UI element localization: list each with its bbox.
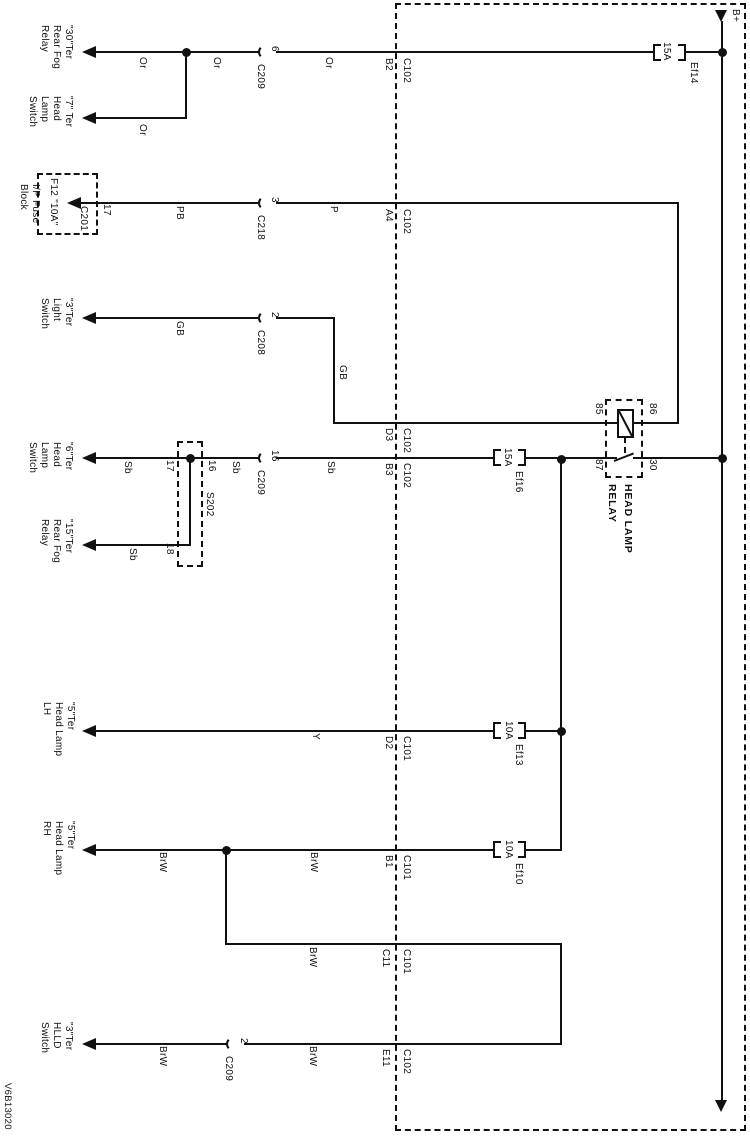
wire-color-label: BrW: [156, 1046, 168, 1066]
target-rear-fog-relay-15: "15"Ter Rear Fog Relay: [38, 519, 74, 563]
connector-name: C102: [400, 463, 412, 488]
wire-gb-1: [95, 317, 258, 319]
relay-pin: 30: [646, 459, 658, 471]
wire-feed-drop: [560, 459, 562, 851]
relay-86-stub: [633, 422, 679, 424]
wire-brw-loop: [560, 944, 562, 1045]
fuse-rating: 10A: [502, 840, 514, 859]
connector-pin: 16: [268, 450, 280, 462]
wire-color-label: BrW: [307, 852, 319, 872]
target-head-lamp-switch-7: "7" Ter Head Lamp Switch: [26, 96, 74, 127]
wire-color-label: BrW: [306, 947, 318, 967]
connector-pin: C11: [379, 949, 391, 968]
fuse-rating: 15A: [660, 42, 672, 61]
relay-name: HEAD LAMP RELAY: [604, 484, 636, 554]
target-hlld-switch-3: "3"Ter HLLD Switch: [38, 1022, 74, 1053]
relay-pin: 87: [592, 459, 604, 471]
wiring-diagram-page: B+ "30"Ter Rear Fog Relay Or Or 6 C209 O…: [0, 0, 750, 1136]
wire-p: [276, 202, 679, 204]
junction-dot: [557, 727, 566, 736]
bplus-exit-arrow-icon: [715, 1100, 727, 1112]
wire-sb-drop: [189, 459, 191, 545]
connector-name: C101: [400, 736, 412, 761]
connector-pin: 17: [100, 204, 112, 216]
relay-actuator-dash: [624, 437, 626, 453]
wire-brw-3: [225, 943, 562, 945]
wire-arrow-icon: [82, 46, 96, 58]
wire-or-3: [685, 51, 722, 53]
target-light-switch-3: "3"Ter Light Switch: [38, 298, 74, 329]
target-head-lamp-lh-5: "5"Ter Head Lamp LH: [40, 702, 76, 756]
wire-color-label: Sb: [126, 548, 138, 561]
splice-pin: 17: [163, 460, 175, 472]
wire-brw-4: [95, 1043, 228, 1045]
wire-y-1: [95, 730, 493, 732]
relay-pin: 85: [592, 403, 604, 415]
fuse-rating: 10A: [502, 721, 514, 740]
target-head-lamp-rh-5: "5"Ter Head Lamp RH: [40, 821, 76, 875]
connector-name: C101: [400, 855, 412, 880]
relay-coil-icon: [617, 409, 635, 439]
splice-pin: 16: [205, 460, 217, 472]
wire-gb-drop: [333, 317, 335, 424]
wire-color-label: Or: [136, 124, 148, 136]
wire-sb-2: [276, 457, 493, 459]
connector-name: C208: [254, 330, 266, 355]
harness-boundary-box: [395, 3, 746, 1131]
connector-pin: A4: [382, 209, 394, 222]
fuse-f12-label: F12 "10A": [47, 178, 59, 226]
fuse-name: Ef14: [687, 62, 699, 84]
wire-color-label: P: [327, 206, 339, 213]
wire-color-label: Y: [309, 733, 321, 740]
wire-arrow-icon: [82, 539, 96, 551]
wire-or-2: [276, 51, 653, 53]
target-head-lamp-switch-6: "6"Ter Head Lamp Switch: [26, 442, 74, 473]
wire-color-label: Sb: [121, 461, 133, 474]
connector-name: C209: [222, 1056, 234, 1081]
connector-pin: E11: [379, 1049, 391, 1067]
wire-sb-4: [95, 544, 191, 546]
splice-pin: 18: [163, 543, 175, 555]
wire-arrow-icon: [82, 844, 96, 856]
wire-color-label: Or: [136, 57, 148, 69]
wire-arrow-icon: [82, 112, 96, 124]
wire-color-label: BrW: [156, 852, 168, 872]
connector-name: C102: [400, 58, 412, 83]
fuse-bracket-icon: [493, 449, 501, 466]
connector-name: C102: [400, 1049, 412, 1074]
wire-color-label: GB: [336, 365, 348, 380]
fuse-bracket-icon: [493, 722, 501, 739]
wire-color-label: Sb: [324, 461, 336, 474]
relay-pin: 86: [646, 403, 658, 415]
wire-arrow-icon: [82, 312, 96, 324]
connector-name: C209: [254, 470, 266, 495]
wire-or-1: [95, 51, 260, 53]
connector-pin: D2: [382, 736, 394, 749]
connector-name: C201: [77, 206, 89, 231]
wire-p-drop: [677, 202, 679, 424]
bplus-label: B+: [729, 9, 741, 22]
wire-color-label: Sb: [229, 461, 241, 474]
wire-gb-2: [276, 317, 335, 319]
connector-pin: D3: [382, 428, 394, 441]
wire-color-label: BrW: [306, 1046, 318, 1066]
wire-brw-5: [244, 1043, 562, 1045]
connector-name: C101: [400, 949, 412, 974]
connector-name: C218: [254, 215, 266, 240]
connector-name: C209: [254, 64, 266, 89]
fuse-name: Ef16: [512, 471, 524, 493]
wire-brw-2: [525, 849, 562, 851]
wire-brw-1: [95, 849, 493, 851]
connector-pin: B1: [382, 855, 394, 868]
connector-name: C102: [400, 209, 412, 234]
diagram-id: V6B13020: [1, 1083, 13, 1130]
fuse-bracket-icon: [493, 841, 501, 858]
connector-pin: B2: [382, 58, 394, 71]
wire-color-label: PB: [173, 206, 185, 220]
fuse-name: Ef10: [512, 863, 524, 885]
wire-arrow-icon: [82, 452, 96, 464]
wire-arrow-icon: [82, 1038, 96, 1050]
wire-or-drop: [185, 52, 187, 118]
wire-gb-3: [333, 422, 605, 424]
wire-color-label: GB: [173, 321, 185, 336]
wire-arrow-icon: [82, 725, 96, 737]
splice-name: S202: [203, 492, 215, 517]
connector-pin: B3: [382, 463, 394, 476]
wire-or-4: [95, 117, 187, 119]
wire-color-label: Or: [322, 57, 334, 69]
ip-fuse-block-label: I/P Fuse Block: [17, 184, 41, 223]
wire-brw-drop: [225, 850, 227, 945]
wire-color-label: Or: [210, 57, 222, 69]
fuse-name: Ef13: [512, 744, 524, 766]
fuse-rating: 15A: [501, 448, 513, 467]
connector-name: C102: [400, 428, 412, 453]
bplus-bus-wire: [721, 21, 723, 1102]
target-rear-fog-relay-30: "30"Ter Rear Fog Relay: [38, 25, 74, 69]
